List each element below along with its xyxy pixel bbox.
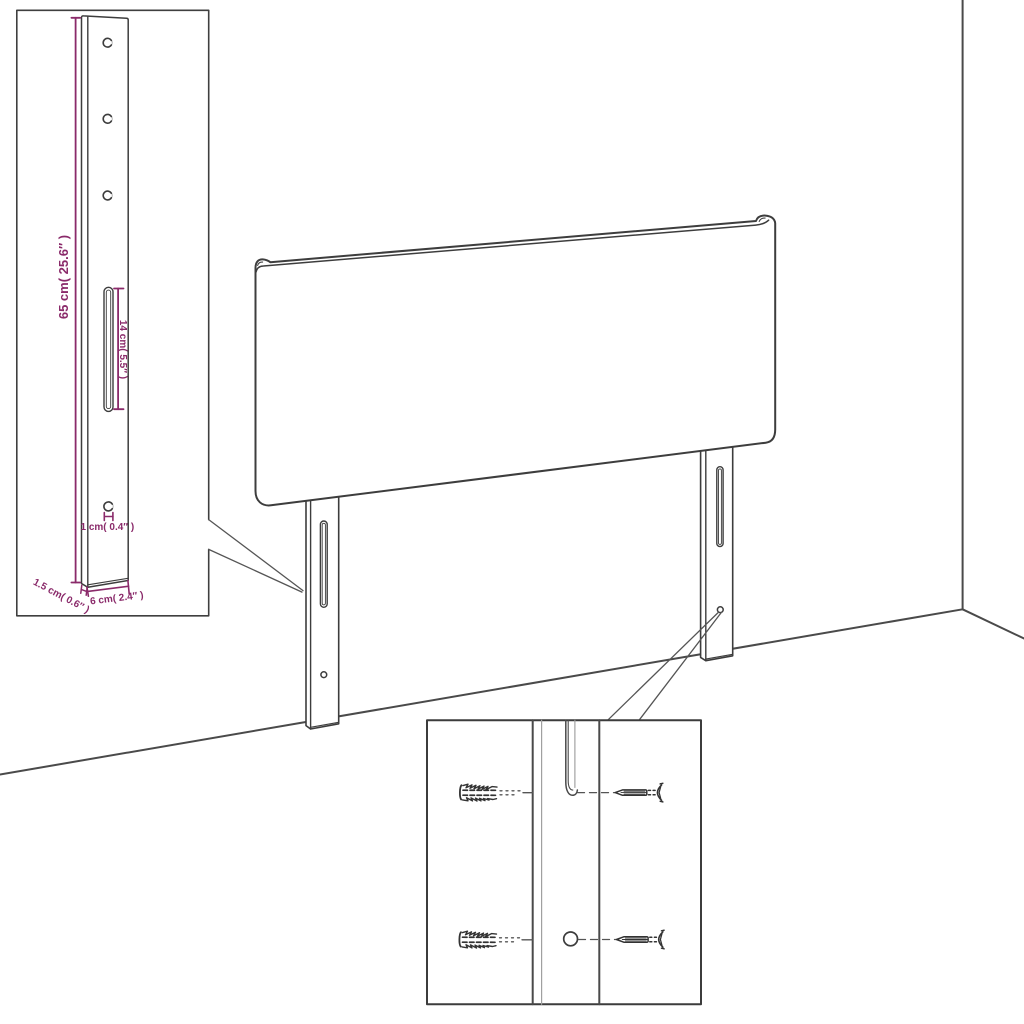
svg-text:65 cm( 25.6″ ): 65 cm( 25.6″ ): [56, 235, 71, 319]
svg-text:14 cm( 5.5″ ): 14 cm( 5.5″ ): [117, 320, 128, 379]
svg-text:1 cm( 0.4″ ): 1 cm( 0.4″ ): [81, 522, 135, 533]
